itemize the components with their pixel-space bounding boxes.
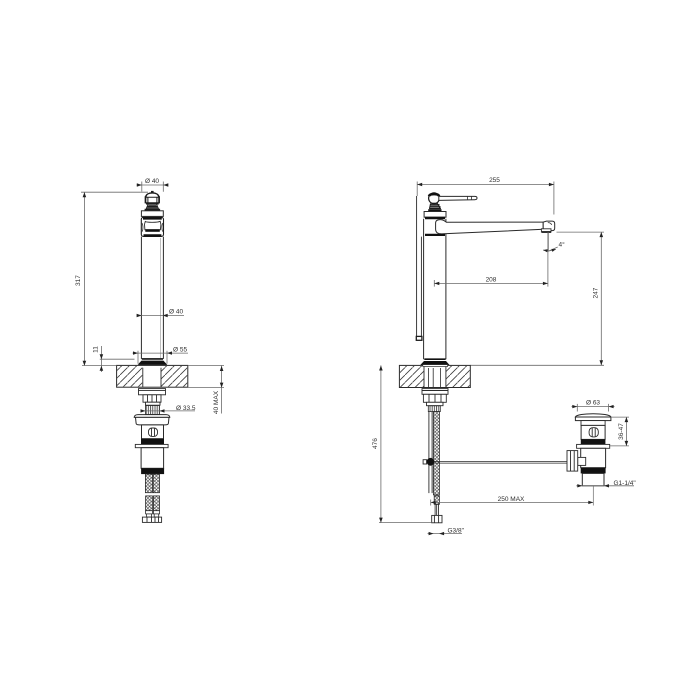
svg-text:4°: 4° [559,240,566,248]
svg-text:Ø 40: Ø 40 [145,178,159,185]
svg-text:40 MAX: 40 MAX [213,390,220,414]
svg-text:208: 208 [486,276,497,283]
svg-text:Ø 63: Ø 63 [586,400,600,407]
svg-text:317: 317 [75,275,82,286]
svg-text:Ø 40: Ø 40 [169,309,183,316]
svg-text:255: 255 [489,177,500,184]
svg-text:250 MAX: 250 MAX [498,496,525,503]
svg-text:G1-1/4": G1-1/4" [614,480,637,487]
svg-text:476: 476 [372,438,379,449]
svg-text:36-47: 36-47 [618,423,625,440]
svg-text:11: 11 [93,346,100,353]
svg-text:Ø 55: Ø 55 [173,346,187,353]
svg-text:247: 247 [593,287,600,298]
svg-text:Ø 33.5: Ø 33.5 [176,405,196,412]
svg-text:G3/8": G3/8" [448,527,465,534]
